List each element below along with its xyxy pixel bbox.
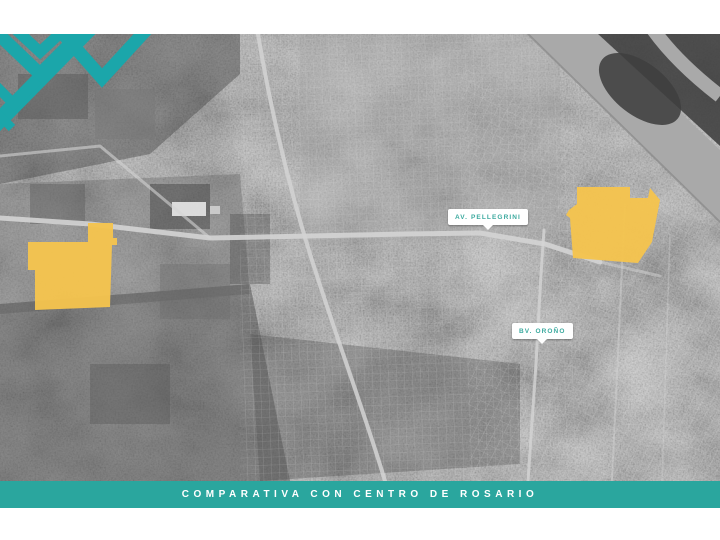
street-label-text: BV. OROÑO	[519, 328, 566, 335]
street-label-text: AV. PELLEGRINI	[455, 214, 521, 221]
street-label-av-pellegrini: AV. PELLEGRINI	[448, 209, 528, 225]
satellite-map: AV. PELLEGRINI BV. OROÑO	[0, 34, 720, 481]
caption-text: COMPARATIVA CON CENTRO DE ROSARIO	[182, 489, 538, 500]
slide-canvas: AV. PELLEGRINI BV. OROÑO COMPARATIVA CON…	[0, 0, 720, 540]
satellite-map-graphic	[0, 34, 720, 481]
bottom-margin	[0, 508, 720, 540]
top-margin	[0, 0, 720, 34]
caption-bar: COMPARATIVA CON CENTRO DE ROSARIO	[0, 481, 720, 508]
street-label-bv-orono: BV. OROÑO	[512, 323, 573, 339]
